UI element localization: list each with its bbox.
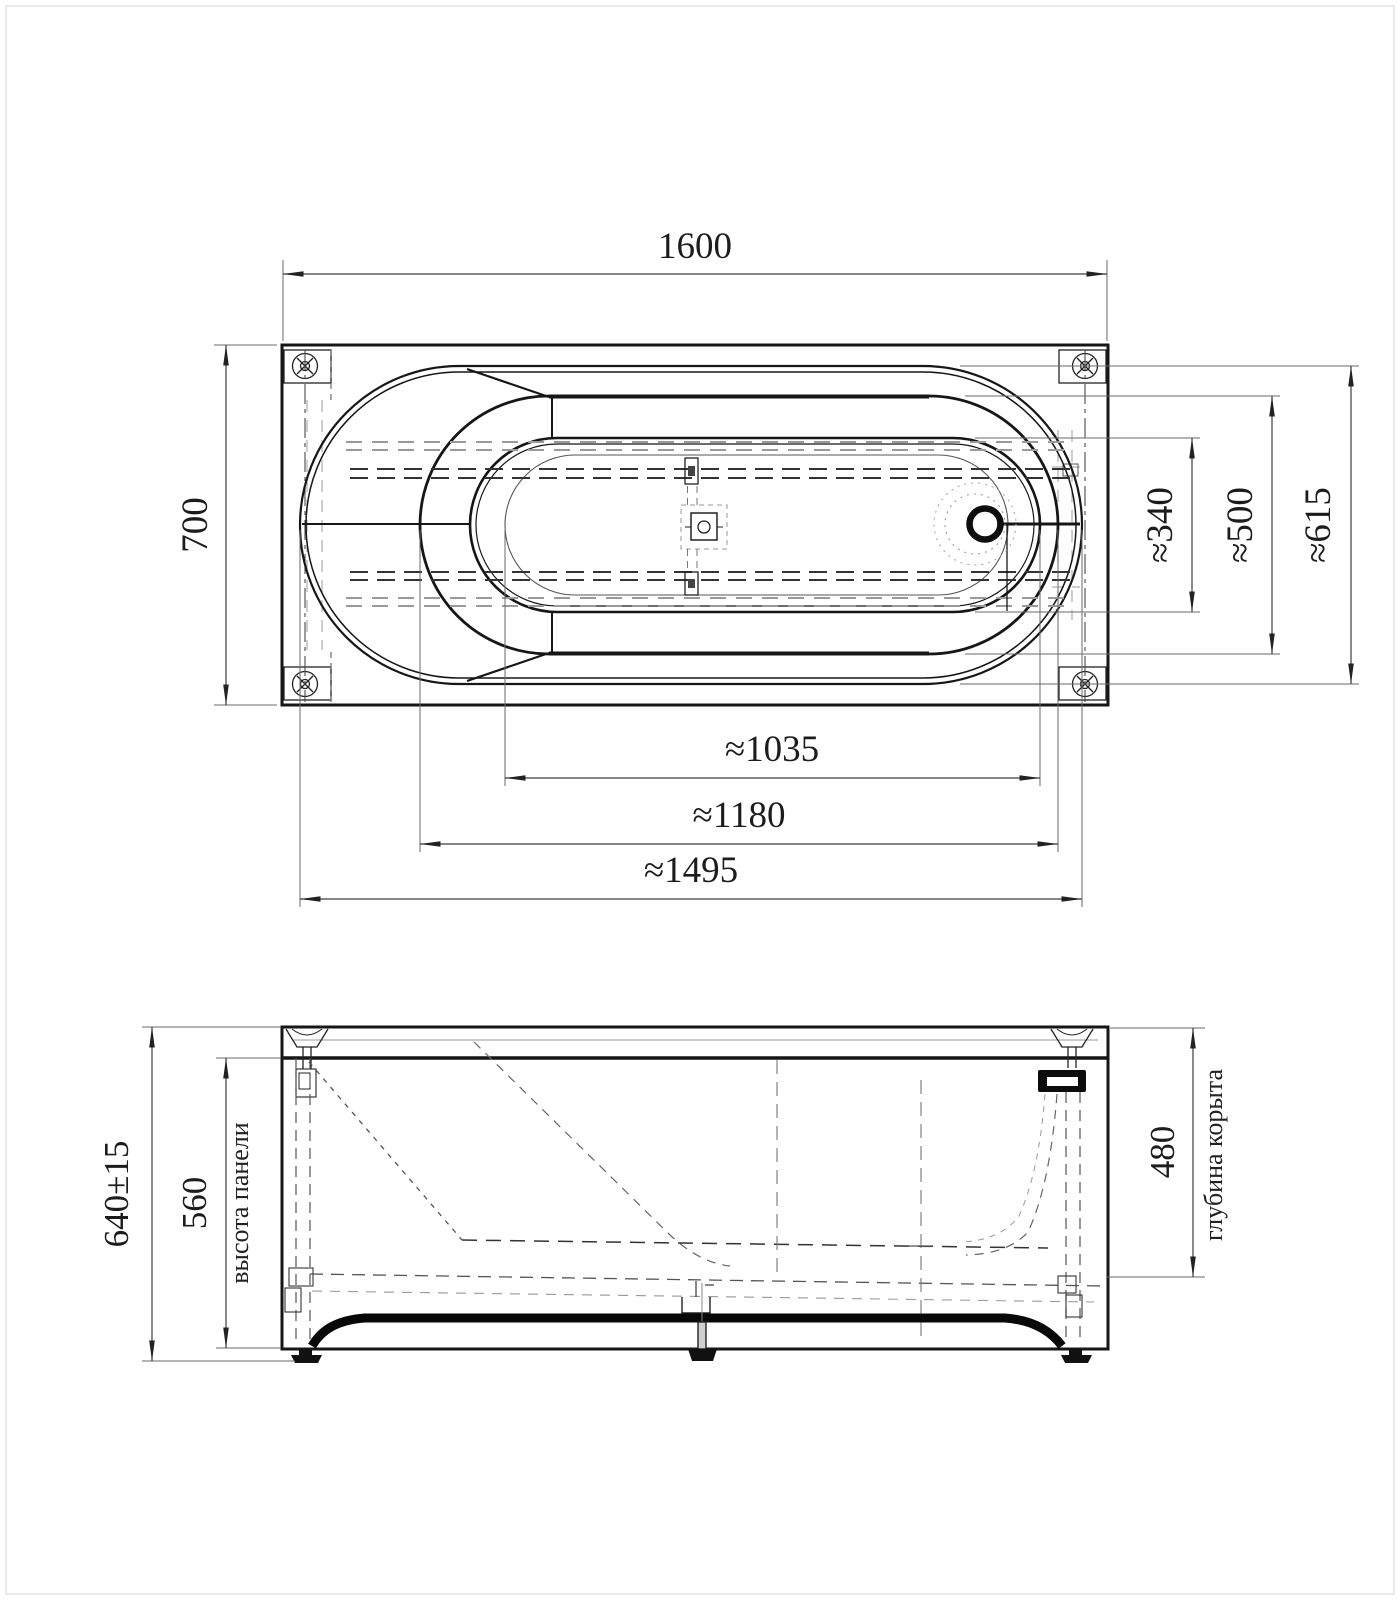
corner-bracket-bottom-left — [284, 652, 331, 702]
tub-shelf — [420, 396, 1058, 654]
chamfer-bottom — [467, 653, 549, 681]
drawing-sheet: 1600 700 ≈340 ≈500 ≈615 ≈1035 ≈1180 ≈149… — [0, 0, 1400, 1600]
rim-clamp-left — [286, 1029, 328, 1097]
foot-right — [1061, 1349, 1092, 1363]
corner-bracket-top-left — [284, 350, 331, 400]
panel-height-caption: высота панели — [225, 1122, 254, 1284]
dim-opening-width-label: ≈500 — [1220, 487, 1261, 563]
dim-overall-length-label: ≈1495 — [644, 850, 738, 891]
tub-basin-bottom — [505, 455, 1008, 595]
chamfer-top — [467, 369, 549, 397]
plan-dimensions: 1600 700 ≈340 ≈500 ≈615 ≈1035 ≈1180 ≈149… — [175, 226, 1359, 907]
overflow-fitting — [1038, 1070, 1086, 1092]
tub-basin-opening — [470, 438, 1040, 612]
apron-band — [312, 1318, 1062, 1346]
dim-overall-height-label: 640±15 — [97, 1141, 136, 1248]
rim-clamp-right — [1051, 1029, 1093, 1068]
front-view — [282, 1027, 1108, 1363]
dim-length-label: 1600 — [658, 226, 732, 267]
plan-view — [282, 345, 1108, 705]
technical-drawing: 1600 700 ≈340 ≈500 ≈615 ≈1035 ≈1180 ≈149… — [0, 0, 1400, 1600]
dim-panel-height-label: 560 — [175, 1177, 214, 1230]
hidden-legs-front — [296, 1058, 1080, 1344]
dim-shelf-length-label: ≈1180 — [693, 795, 786, 836]
dim-width-label: 700 — [175, 497, 216, 553]
foot-left — [291, 1349, 322, 1363]
tub-hidden-profile — [309, 1042, 1104, 1344]
dim-opening-length-label: ≈1035 — [725, 729, 819, 770]
dim-bottom-width-label: ≈340 — [1140, 487, 1181, 563]
dim-rim-width-label: ≈615 — [1298, 487, 1339, 563]
dim-bowl-depth-label: 480 — [1143, 1126, 1182, 1179]
drain-circle — [934, 483, 1016, 565]
bowl-depth-caption: глубина корыта — [1199, 1069, 1228, 1242]
